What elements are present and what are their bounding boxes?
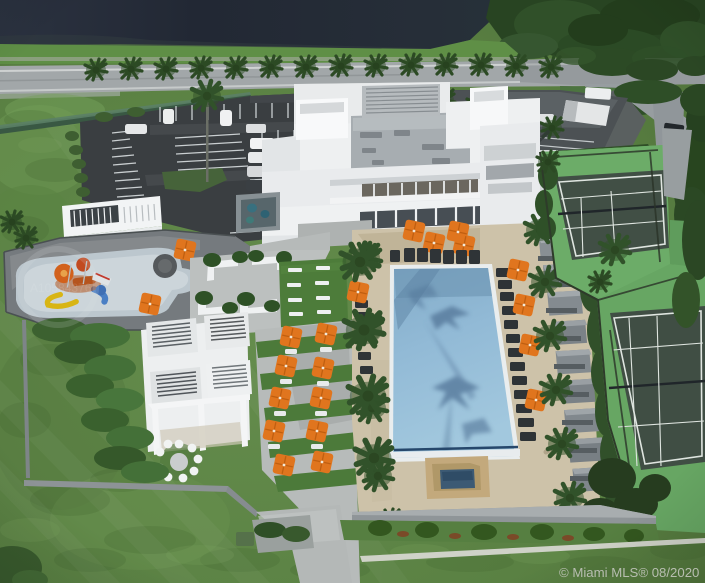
svg-text:© Miami MLS® 08/2020: © Miami MLS® 08/2020 — [559, 565, 699, 580]
svg-text:A10584376: A10584376 — [30, 281, 92, 295]
